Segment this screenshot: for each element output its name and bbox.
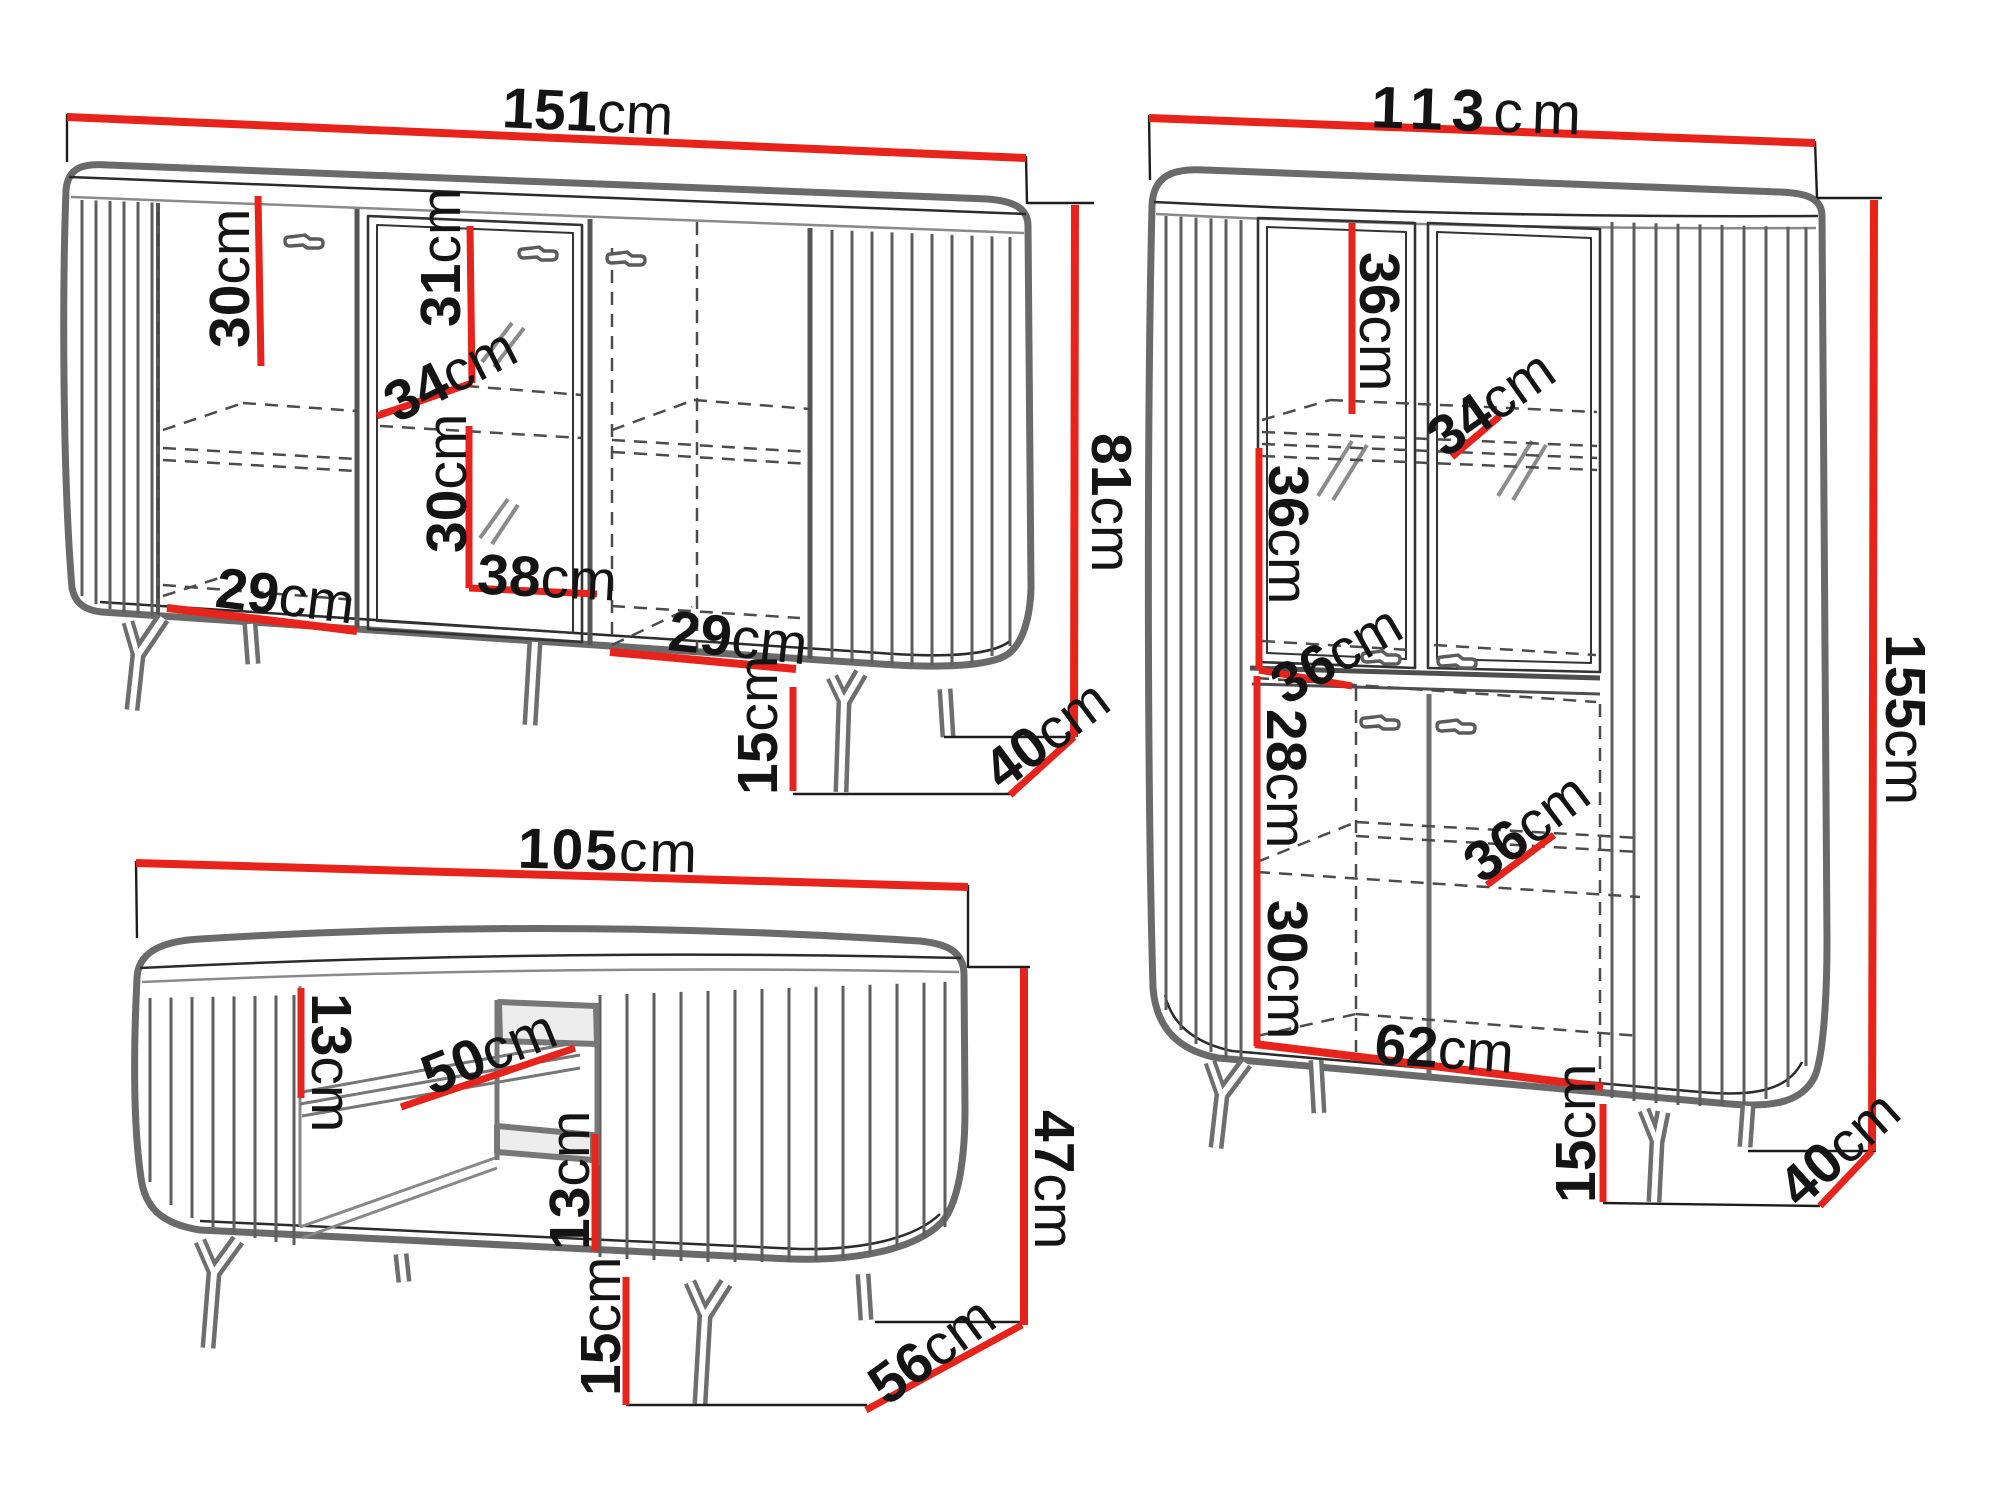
svg-text:31cm: 31cm bbox=[409, 188, 473, 327]
svg-text:15cm: 15cm bbox=[1544, 1064, 1608, 1203]
svg-text:47cm: 47cm bbox=[1022, 1110, 1086, 1249]
svg-text:36cm: 36cm bbox=[1347, 252, 1411, 391]
svg-text:113cm: 113cm bbox=[1370, 74, 1591, 148]
svg-text:105cm: 105cm bbox=[517, 817, 700, 886]
svg-text:13cm: 13cm bbox=[299, 993, 363, 1132]
svg-text:28cm: 28cm bbox=[1254, 709, 1318, 848]
svg-text:62cm: 62cm bbox=[1373, 1012, 1517, 1086]
svg-text:155cm: 155cm bbox=[1873, 634, 1937, 805]
svg-text:36cm: 36cm bbox=[1256, 465, 1320, 604]
svg-text:81cm: 81cm bbox=[1079, 433, 1143, 572]
svg-text:15cm: 15cm bbox=[569, 1257, 633, 1396]
svg-text:15cm: 15cm bbox=[726, 656, 790, 795]
svg-text:30cm: 30cm bbox=[415, 414, 479, 553]
svg-text:13cm: 13cm bbox=[538, 1111, 602, 1250]
svg-text:30cm: 30cm bbox=[198, 209, 262, 348]
svg-text:151cm: 151cm bbox=[501, 76, 675, 148]
svg-text:38cm: 38cm bbox=[476, 542, 619, 613]
svg-text:30cm: 30cm bbox=[1255, 900, 1319, 1039]
